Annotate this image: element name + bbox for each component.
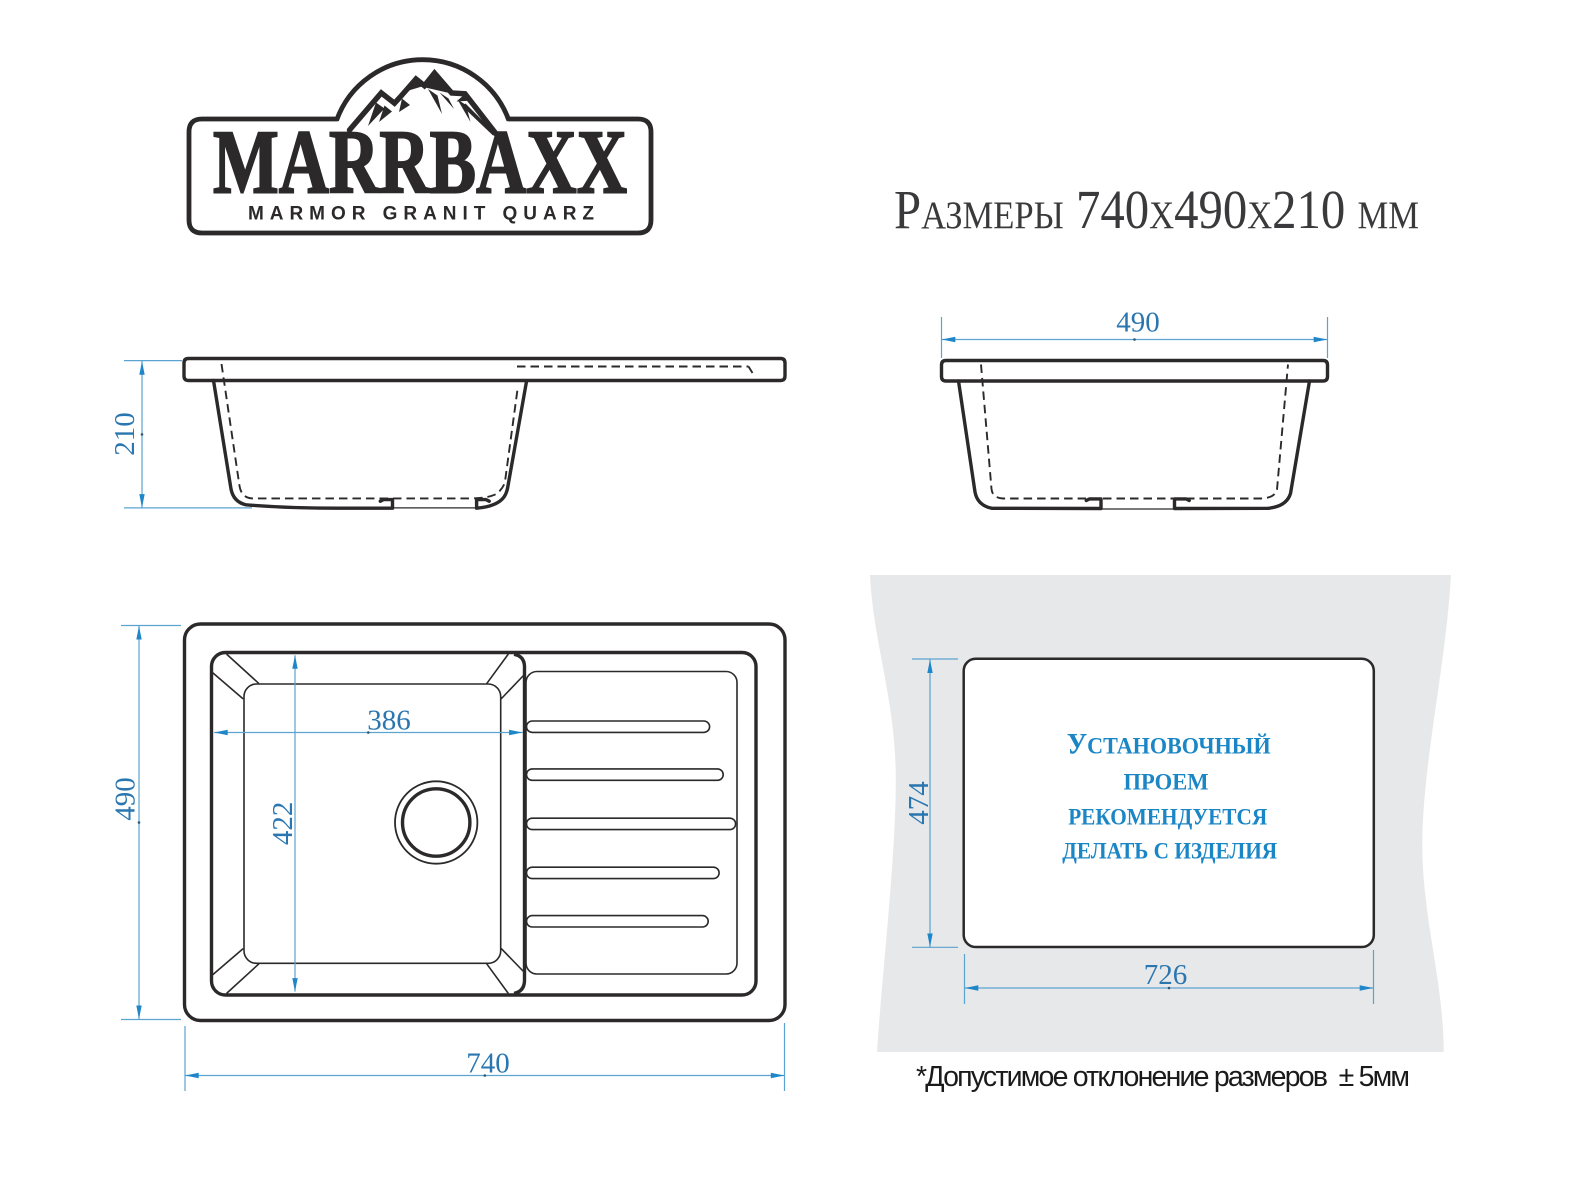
svg-text:490: 490 [110, 777, 142, 821]
svg-text:ПРОЕМ: ПРОЕМ [1124, 770, 1209, 796]
svg-text:ДЕЛАТЬ С ИЗДЕЛИЯ: ДЕЛАТЬ С ИЗДЕЛИЯ [1062, 839, 1277, 865]
svg-text:386: 386 [367, 705, 411, 737]
svg-text:422: 422 [267, 802, 299, 846]
svg-text:Размеры 740х490х210 мм: Размеры 740х490х210 мм [894, 179, 1419, 240]
svg-text:490: 490 [1116, 307, 1160, 339]
svg-text:УСТАНОВОЧНЫЙ: УСТАНОВОЧНЫЙ [1067, 729, 1271, 761]
svg-text:740: 740 [466, 1048, 510, 1080]
svg-text:*Допустимое отклонение размеро: *Допустимое отклонение размеров ± 5мм [916, 1061, 1410, 1093]
svg-text:726: 726 [1144, 959, 1188, 991]
svg-text:MARRBAXX: MARRBAXX [213, 111, 627, 212]
svg-text:РЕКОМЕНДУЕТСЯ: РЕКОМЕНДУЕТСЯ [1068, 805, 1267, 831]
svg-text:210: 210 [109, 412, 141, 456]
svg-text:474: 474 [903, 781, 935, 825]
